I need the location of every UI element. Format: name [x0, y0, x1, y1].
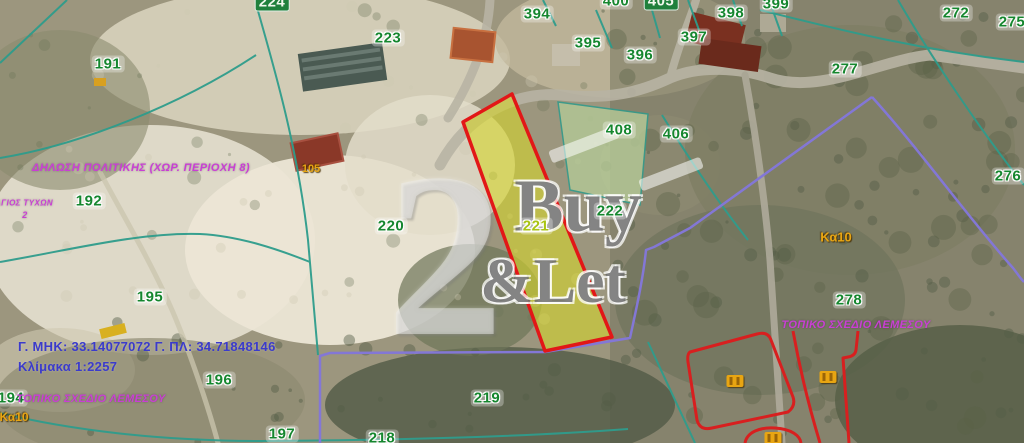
parcel-label-408: 408 — [603, 122, 636, 139]
planning-annotation: ΤΟΠΙΚΟ ΣΧΕΔΙΟ ΛΕΜΕΣΟΥ — [781, 319, 930, 331]
parcel-label-224: 224 — [255, 0, 290, 12]
orange-plot-marker — [820, 371, 837, 383]
planning-annotation: ΔΗΛΩΣΗ ΠΟΛΙΤΙΚΗΣ (ΧΩΡ. ΠΕΡΙΟΧΗ 8) — [32, 162, 250, 174]
parcel-label-218: 218 — [366, 430, 399, 443]
parcel-label-276: 276 — [992, 168, 1024, 185]
cadastral-map: 2 Buy &Let Γ. ΜΗΚ: 33.14077072 Γ. ΠΛ: 34… — [0, 0, 1024, 443]
parcel-label-272: 272 — [940, 5, 973, 22]
parcel-label-197: 197 — [266, 426, 299, 443]
parcel-label-219: 219 — [471, 390, 504, 407]
parcel-label-395: 395 — [572, 35, 605, 52]
orange-plot-marker — [727, 375, 744, 387]
parcel-label-191: 191 — [92, 56, 125, 73]
parcel-label-192: 192 — [73, 193, 106, 210]
scale-readout: Κλίμακα 1:2257 — [18, 359, 117, 374]
parcel-label-222: 222 — [594, 203, 627, 220]
parcel-label-399: 399 — [760, 0, 793, 13]
orange-plot-marker — [765, 432, 782, 443]
parcel-label-400: 400 — [600, 0, 633, 10]
planning-annotation: ΤΟΠΙΚΟ ΣΧΕΔΙΟ ΛΕΜΕΣΟΥ — [16, 393, 165, 405]
parcel-label-275: 275 — [996, 14, 1024, 31]
parcel-label-397: 397 — [678, 29, 711, 46]
planning-annotation: 2 — [22, 210, 27, 220]
label-layer: Γ. ΜΗΚ: 33.14077072 Γ. ΠΛ: 34.71848146 Κ… — [0, 0, 1024, 443]
parcel-label-406: 406 — [660, 126, 693, 143]
parcel-label-195: 195 — [134, 289, 167, 306]
parcel-label-220: 220 — [375, 218, 408, 235]
parcel-label-196: 196 — [203, 372, 236, 389]
parcel-label-223: 223 — [372, 30, 405, 47]
parcel-label-396: 396 — [624, 47, 657, 64]
zone-code-label: Κα10 — [0, 410, 29, 424]
parcel-label-278: 278 — [833, 292, 866, 309]
parcel-label-277: 277 — [829, 61, 862, 78]
parcel-label-405: 405 — [644, 0, 679, 11]
parcel-label-394: 394 — [521, 6, 554, 23]
zone-code-label: 105 — [302, 163, 320, 175]
coordinate-readout: Γ. ΜΗΚ: 33.14077072 Γ. ΠΛ: 34.71848146 — [18, 339, 276, 354]
zone-code-label: Κα10 — [820, 230, 852, 245]
parcel-label-398: 398 — [715, 5, 748, 22]
planning-annotation: ΑΓΙΟΣ ΤΥΧΩΝ — [0, 199, 53, 208]
parcel-label-221: 221 — [520, 218, 553, 235]
